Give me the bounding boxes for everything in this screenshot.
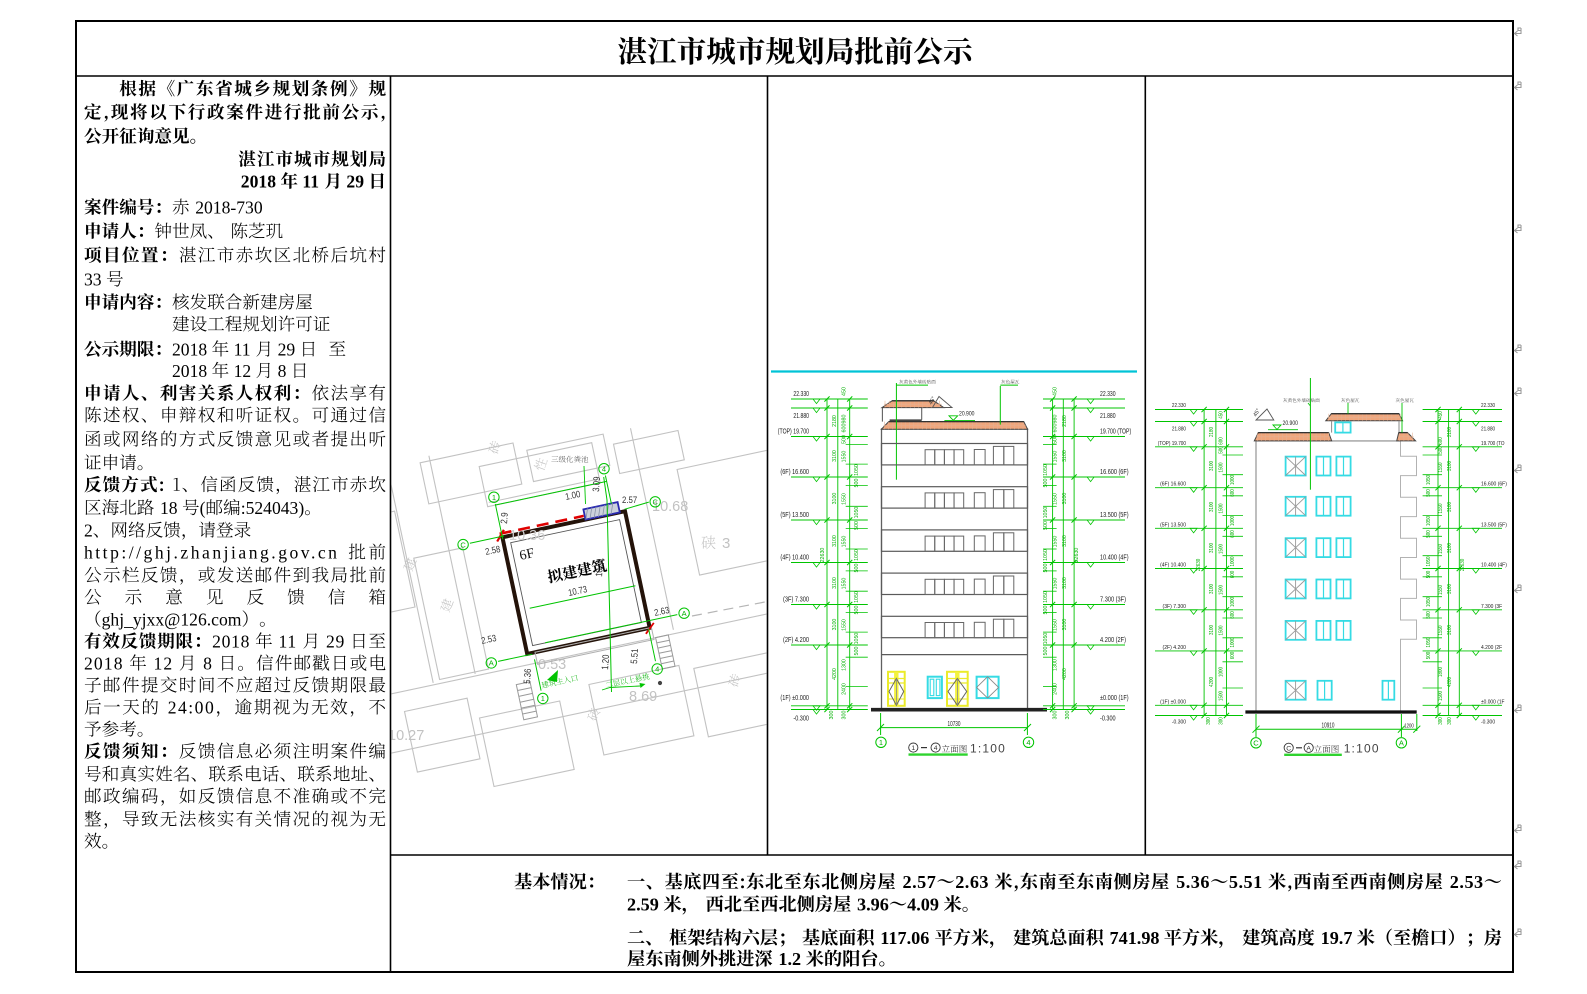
svg-text:2180: 2180 [1062,415,1068,427]
svg-text:500: 500 [1043,647,1049,656]
svg-text:21.880: 21.880 [1172,427,1186,433]
svg-text:5.51: 5.51 [629,648,641,664]
svg-text:450: 450 [1438,411,1444,419]
svg-text:3100: 3100 [1062,619,1068,631]
svg-text:1: 1 [911,745,915,752]
svg-text:1000: 1000 [1230,637,1236,647]
svg-text:A: A [1306,745,1311,752]
svg-text:22630: 22630 [1196,559,1202,572]
svg-text:21.880: 21.880 [793,412,809,420]
svg-text:12: 12 [229,361,255,381]
svg-text:4: 4 [1026,738,1030,747]
svg-text:(1F) ±0.000: (1F) ±0.000 [780,694,809,702]
svg-text:1050: 1050 [854,549,860,561]
svg-text:11: 11 [273,631,302,651]
svg-text:7.300 (3F: 7.300 (3F [1481,604,1503,610]
svg-text:3.96: 3.96 [857,895,889,915]
svg-text:(2F) 4.200: (2F) 4.200 [783,636,809,644]
svg-text:600: 600 [1219,437,1225,445]
svg-text:-0.300: -0.300 [1481,720,1495,726]
svg-text:117.06: 117.06 [880,928,934,948]
svg-text:600: 600 [1230,652,1236,660]
svg-text:(3F) 7.300: (3F) 7.300 [783,596,809,604]
svg-text:450: 450 [842,387,848,396]
svg-text:1550: 1550 [842,451,848,463]
svg-text:8.69: 8.69 [629,689,657,705]
svg-text:1050: 1050 [1043,591,1049,603]
svg-text:A: A [489,659,494,668]
svg-text:ghj_yjxx@126.com: ghj_yjxx@126.com [102,609,242,629]
svg-text:2018-730: 2018-730 [195,197,263,217]
svg-text:3100: 3100 [1209,584,1215,594]
svg-text:(4F) 10.400: (4F) 10.400 [1160,563,1186,569]
svg-text:13.500 (5F): 13.500 (5F) [1100,511,1129,519]
svg-text:2.57: 2.57 [903,872,937,892]
svg-text:4200: 4200 [1447,677,1453,687]
svg-text:2.9: 2.9 [499,512,511,524]
svg-text:3100: 3100 [1062,450,1068,462]
svg-text:500: 500 [854,606,860,615]
svg-text:2018: 2018 [172,361,212,381]
svg-text:12: 12 [148,653,179,673]
svg-text:2400: 2400 [1053,683,1059,695]
svg-text:3100: 3100 [1209,625,1215,635]
svg-text:21.880: 21.880 [1481,427,1495,433]
svg-text:1800: 1800 [1438,667,1444,677]
svg-text:±0.000 (1F: ±0.000 (1F [1481,699,1505,705]
svg-text:10.27: 10.27 [388,728,424,744]
svg-text:(6F) 16.600: (6F) 16.600 [1160,482,1186,488]
svg-text:http://ghj.zhanjiang.gov.cn: http://ghj.zhanjiang.gov.cn [84,542,346,562]
svg-text:2180: 2180 [832,415,838,427]
svg-text:1500: 1500 [1219,691,1225,701]
svg-text:(TOP) 19.700: (TOP) 19.700 [1158,441,1186,447]
svg-text:8: 8 [198,653,219,673]
svg-text:3100: 3100 [1447,584,1453,594]
svg-text:600: 600 [1230,571,1236,579]
svg-text:300: 300 [1206,717,1212,725]
svg-text:(5F) 13.500: (5F) 13.500 [1160,522,1186,528]
svg-text:(6F) 16.600: (6F) 16.600 [780,468,809,476]
svg-text:500: 500 [1426,489,1432,497]
svg-text:600: 600 [842,424,848,433]
svg-text:-0.300: -0.300 [793,715,809,723]
svg-text:4.200 (2F: 4.200 (2F [1481,645,1503,651]
svg-text:500: 500 [1426,530,1432,538]
svg-text:1:100: 1:100 [970,742,1006,756]
svg-text:300: 300 [1219,717,1225,725]
svg-text:450: 450 [1219,411,1225,419]
svg-text:(TOP) 19.700: (TOP) 19.700 [778,428,809,436]
svg-text:A: A [1399,739,1404,748]
svg-text:300: 300 [1438,717,1444,725]
svg-text:500: 500 [1426,571,1432,579]
svg-text:500: 500 [854,647,860,656]
svg-text:3100: 3100 [832,619,838,631]
svg-text:22.330: 22.330 [1481,403,1495,409]
svg-text:29: 29 [342,171,368,191]
svg-text:-0.300: -0.300 [1100,715,1116,723]
svg-text:3100: 3100 [832,450,838,462]
svg-text:16.600 (6F): 16.600 (6F) [1100,468,1129,476]
svg-text:1050: 1050 [1043,464,1049,476]
svg-text:1050: 1050 [1043,507,1049,519]
svg-text:500: 500 [1043,479,1049,488]
svg-text:18: 18 [160,498,182,518]
svg-text:300: 300 [1053,711,1059,720]
svg-text:10.400 (4F): 10.400 (4F) [1100,554,1129,562]
svg-text:7.300 (3F): 7.300 (3F) [1100,596,1126,604]
svg-text:1500: 1500 [1219,544,1225,554]
svg-text:3: 3 [722,535,730,552]
svg-text:-0.300: -0.300 [1172,720,1186,726]
svg-text:3100: 3100 [1209,461,1215,471]
svg-text:4: 4 [934,745,938,752]
svg-text:(4F) 10.400: (4F) 10.400 [780,554,809,562]
svg-text:2.63: 2.63 [955,872,994,892]
svg-text:3100: 3100 [1209,502,1215,512]
svg-text:10.91: 10.91 [594,557,606,577]
svg-text:(2F) 4.200: (2F) 4.200 [1163,645,1187,651]
svg-text:3.09: 3.09 [591,476,603,492]
svg-text:500: 500 [1219,446,1225,454]
svg-text:1050: 1050 [854,633,860,645]
svg-text:1050: 1050 [854,464,860,476]
svg-text:1050: 1050 [1426,637,1432,647]
svg-text:980: 980 [1053,415,1059,424]
svg-text:19.700 (TOP): 19.700 (TOP) [1100,428,1131,436]
svg-text:1550: 1550 [842,619,848,631]
svg-text:500: 500 [854,521,860,530]
svg-text:4.200 (2F): 4.200 (2F) [1100,636,1126,644]
svg-text:4: 4 [655,665,659,674]
svg-text:3100: 3100 [832,577,838,589]
svg-text:1.2: 1.2 [778,949,805,969]
svg-text:19.7: 19.7 [1321,928,1357,948]
svg-text:20.900: 20.900 [959,411,975,418]
svg-text:1050: 1050 [1043,549,1049,561]
svg-text:1550: 1550 [1438,544,1444,554]
svg-text:1500: 1500 [1219,625,1225,635]
svg-text:5.36: 5.36 [522,668,534,684]
svg-text:1550: 1550 [1438,625,1444,635]
svg-text:3100: 3100 [1447,625,1453,635]
svg-text:2.53: 2.53 [1450,872,1484,892]
svg-text:500: 500 [854,564,860,573]
svg-text:4: 4 [602,464,606,473]
svg-text:3100: 3100 [1447,543,1453,553]
svg-text:2018: 2018 [212,631,255,651]
svg-text:±0.000 (1F): ±0.000 (1F) [1100,694,1129,702]
svg-text:300: 300 [829,711,835,720]
svg-text:2180: 2180 [1447,427,1453,437]
svg-text:300: 300 [842,711,848,720]
svg-text:1550: 1550 [1438,462,1444,472]
svg-text:3100: 3100 [832,493,838,505]
svg-text:500: 500 [1426,611,1432,619]
svg-text:1000: 1000 [1219,667,1225,677]
svg-text:500: 500 [854,479,860,488]
svg-text:500: 500 [1426,652,1432,660]
svg-text:3100: 3100 [832,535,838,547]
svg-text:1: 1 [541,694,545,703]
svg-text:1050: 1050 [1426,597,1432,607]
svg-text:1300: 1300 [842,659,848,671]
svg-text:1200: 1200 [1404,723,1414,729]
svg-text:3100: 3100 [1062,535,1068,547]
svg-text:16.600 (6F): 16.600 (6F) [1481,482,1507,488]
svg-text:500: 500 [1438,446,1444,454]
svg-text:1000: 1000 [1230,516,1236,526]
svg-text:1550: 1550 [1438,585,1444,595]
svg-text:600: 600 [1053,424,1059,433]
svg-text:19.700 (TO: 19.700 (TO [1481,441,1505,447]
svg-text:13.500 (5F): 13.500 (5F) [1481,522,1507,528]
svg-text:29: 29 [273,339,299,359]
svg-text:22.330: 22.330 [793,390,809,398]
svg-text:1: 1 [879,738,883,747]
svg-text:1300: 1300 [1053,659,1059,671]
svg-text:1500: 1500 [1219,585,1225,595]
svg-text:4200: 4200 [1062,668,1068,680]
svg-text:450: 450 [1053,387,1059,396]
svg-text:2018: 2018 [172,339,212,359]
svg-text:(: ( [200,498,206,518]
svg-text:600: 600 [1230,611,1236,619]
svg-text:2.57: 2.57 [622,495,637,506]
svg-text:1050: 1050 [854,591,860,603]
svg-text:C: C [1286,745,1291,752]
svg-text:3100: 3100 [1447,502,1453,512]
svg-text:(5F) 13.500: (5F) 13.500 [780,511,809,519]
svg-text:22.330: 22.330 [1100,390,1116,398]
svg-text:2180: 2180 [1209,427,1215,437]
svg-text:1550: 1550 [842,578,848,590]
svg-text:C: C [652,498,658,507]
svg-text:1.20: 1.20 [600,654,612,670]
svg-text:3100: 3100 [1062,493,1068,505]
svg-text:(1F) ±0.000: (1F) ±0.000 [1160,699,1186,705]
svg-text:1500: 1500 [1219,462,1225,472]
svg-text:500: 500 [1053,435,1059,444]
svg-text:500: 500 [1043,521,1049,530]
svg-text:1:100: 1:100 [1344,742,1380,756]
svg-text:11: 11 [298,171,323,191]
svg-text:1050: 1050 [1426,556,1432,566]
svg-text:(3F) 7.300: (3F) 7.300 [1163,604,1187,610]
svg-text:5.51: 5.51 [1229,872,1268,892]
svg-text:2400: 2400 [842,683,848,695]
svg-text:10.36: 10.36 [509,528,545,544]
svg-text:2: 2 [84,520,93,540]
svg-text:1050: 1050 [1426,516,1432,526]
svg-text:A: A [682,609,687,618]
svg-text:1550: 1550 [842,536,848,548]
svg-text:1500: 1500 [1219,503,1225,513]
svg-text:4200: 4200 [1209,677,1215,687]
svg-text:1550: 1550 [1438,503,1444,513]
svg-text:600: 600 [1438,437,1444,445]
svg-text:1000: 1000 [1230,475,1236,485]
svg-text:3100: 3100 [1447,461,1453,471]
svg-text:1550: 1550 [1053,619,1059,631]
svg-text:600: 600 [1230,530,1236,538]
svg-text:1500: 1500 [1438,691,1444,701]
svg-text:1050: 1050 [1043,633,1049,645]
svg-text:22630: 22630 [1074,548,1080,563]
svg-text:8: 8 [273,361,291,381]
svg-text:2018: 2018 [241,171,281,191]
svg-text:21.880: 21.880 [1100,412,1116,420]
svg-text:4.09: 4.09 [907,895,943,915]
svg-text:1550: 1550 [1053,493,1059,505]
svg-text:741.98: 741.98 [1110,928,1165,948]
svg-text:500: 500 [1043,564,1049,573]
svg-text:1550: 1550 [1053,451,1059,463]
svg-text:1050: 1050 [1426,475,1432,485]
svg-text:C: C [1253,739,1259,748]
svg-text:1000: 1000 [1230,556,1236,566]
svg-text:1: 1 [492,493,496,502]
svg-text:22630: 22630 [1460,559,1466,572]
svg-text:29: 29 [321,631,350,651]
svg-text:500: 500 [842,435,848,444]
svg-text:2.59: 2.59 [627,895,663,915]
svg-text:10910: 10910 [1322,720,1335,729]
svg-text:300: 300 [1447,717,1453,725]
svg-text:24:00: 24:00 [168,697,216,717]
svg-text:10.400 (4F): 10.400 (4F) [1481,563,1507,569]
svg-text:1550: 1550 [1053,578,1059,590]
svg-text:300: 300 [1065,711,1071,720]
svg-text:10730: 10730 [948,719,961,728]
svg-text:1000: 1000 [1230,597,1236,607]
svg-text:3100: 3100 [1062,577,1068,589]
svg-text:22.330: 22.330 [1172,403,1186,409]
svg-text:20.900: 20.900 [1283,420,1299,427]
svg-text:2018: 2018 [84,653,129,673]
svg-text:600: 600 [1230,489,1236,497]
svg-text:3100: 3100 [1209,543,1215,553]
svg-text:11: 11 [229,339,255,359]
svg-text:C: C [460,540,466,549]
svg-text:4200: 4200 [832,668,838,680]
svg-text:5.36: 5.36 [1176,872,1210,892]
svg-text:500: 500 [1043,606,1049,615]
svg-text:1050: 1050 [854,507,860,519]
svg-text::524043): :524043) [241,498,305,518]
svg-text:980: 980 [842,415,848,424]
svg-text:1550: 1550 [1053,536,1059,548]
svg-text:33: 33 [84,269,106,289]
svg-text:22630: 22630 [820,548,826,563]
svg-text:1550: 1550 [842,493,848,505]
